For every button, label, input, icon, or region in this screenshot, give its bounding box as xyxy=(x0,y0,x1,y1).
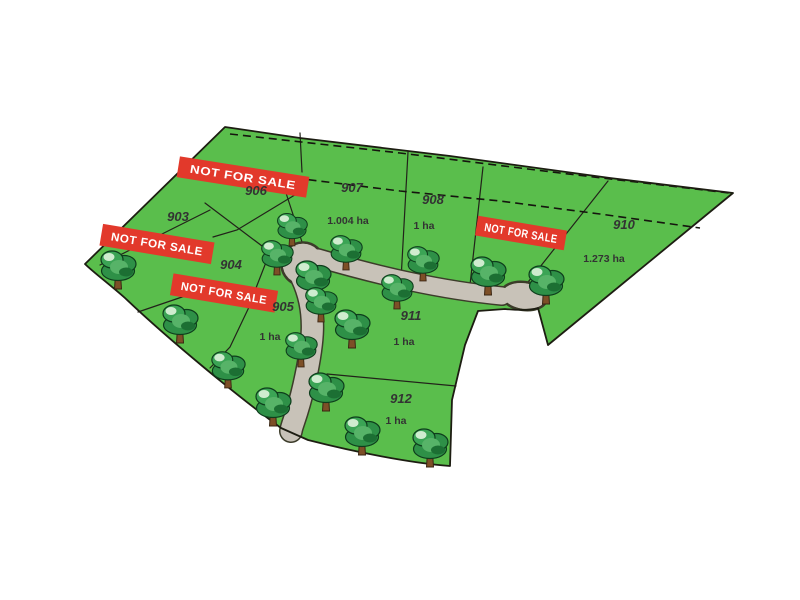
lot-number-label: 904 xyxy=(220,257,242,272)
lot-number-label: 907 xyxy=(341,180,363,195)
lot-number-label: 906 xyxy=(245,183,267,198)
site-plan-canvas: NOT FOR SALENOT FOR SALENOT FOR SALENOT … xyxy=(0,0,800,600)
lot-area-label: 1 ha xyxy=(393,336,414,348)
lot-number-label: 911 xyxy=(401,308,422,323)
lot-area-label: 1 ha xyxy=(413,220,434,232)
lot-number-label: 910 xyxy=(613,217,635,232)
lot-number-label: 912 xyxy=(390,391,412,406)
lot-area-label: 1 ha xyxy=(259,331,280,343)
subdivision-map: NOT FOR SALENOT FOR SALENOT FOR SALENOT … xyxy=(0,0,800,600)
lot-area-label: 1.273 ha xyxy=(583,253,625,265)
lot-number-label: 905 xyxy=(272,299,294,314)
lot-area-label: 1 ha xyxy=(385,415,406,427)
lot-number-label: 903 xyxy=(167,209,189,224)
lot-number-label: 908 xyxy=(422,192,444,207)
lot-area-label: 1.004 ha xyxy=(327,215,369,227)
